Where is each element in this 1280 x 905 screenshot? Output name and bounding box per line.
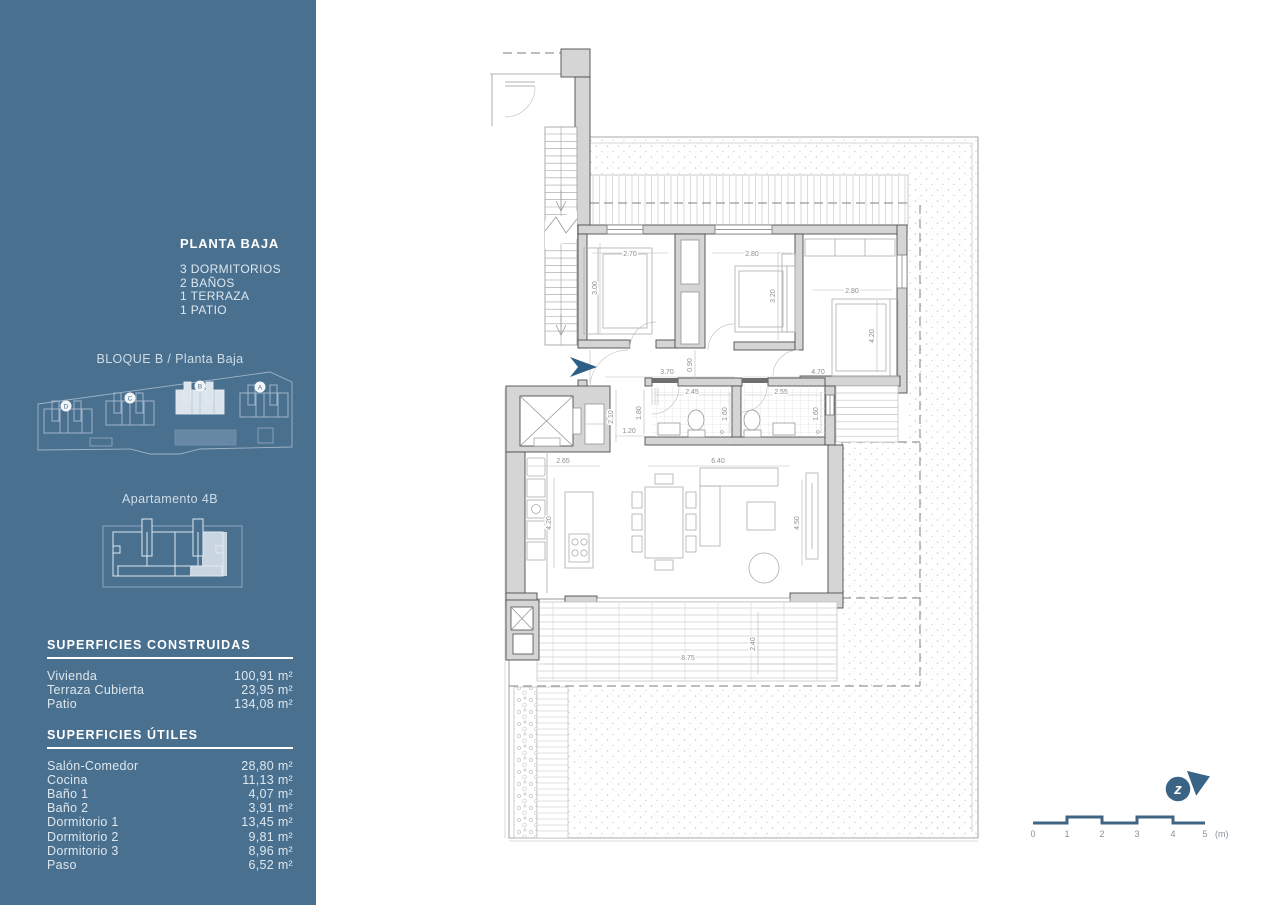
dim-hall-n: 0.90 <box>687 358 694 372</box>
living-kitchen-furniture <box>527 452 818 593</box>
feature-list: 3 DORMITORIOS 2 BAÑOS 1 TERRAZA 1 PATIO <box>180 263 281 317</box>
scale-bar: 0 1 2 3 4 5 (m) <box>1030 817 1228 839</box>
table-row: Dormitorio 38,96 m² <box>47 844 293 858</box>
dim-terrace-h: 2.40 <box>750 637 757 651</box>
dim-hall-w: 3.70 <box>660 369 674 376</box>
table-row: Paso6,52 m² <box>47 858 293 872</box>
scale-tick-0: 0 <box>1030 829 1035 839</box>
row-label: Baño 1 <box>47 787 88 801</box>
feature-item: 2 BAÑOS <box>180 277 281 291</box>
badge-c: C <box>128 396 133 403</box>
site-outbuilding <box>90 438 112 446</box>
bedroom-furniture <box>584 239 898 376</box>
dim-bath2-hr: 1.60 <box>813 407 820 421</box>
block-label: BLOQUE B / Planta Baja <box>30 352 310 366</box>
dim-bed3-w: 2.80 <box>845 288 859 295</box>
row-label: Dormitorio 1 <box>47 815 119 829</box>
dim-hall-s: 1.20 <box>622 428 636 435</box>
apartment-key-diagram <box>100 510 250 598</box>
badge-b: B <box>198 384 202 391</box>
surface-tables: SUPERFICIES CONSTRUIDAS Vivienda100,91 m… <box>47 638 293 872</box>
scale-tick-2: 2 <box>1099 829 1104 839</box>
apartment-label: Apartamento 4B <box>30 492 310 506</box>
site-plan-map: D C B A <box>28 368 300 464</box>
table-row: Cocina11,13 m² <box>47 773 293 787</box>
table-row: Patio134,08 m² <box>47 697 293 711</box>
window-bath2 <box>826 395 834 415</box>
dim-bath1-hr: 1.60 <box>722 407 729 421</box>
scale-unit: (m) <box>1215 829 1229 839</box>
site-badges: D C B A <box>61 381 266 412</box>
table-row: Baño 23,91 m² <box>47 801 293 815</box>
dim-living-w: 6.40 <box>711 458 725 465</box>
apt-highlight-unit <box>190 566 222 576</box>
usable-areas-heading: SUPERFICIES ÚTILES <box>47 728 293 749</box>
sidebar: PLANTA BAJA 3 DORMITORIOS 2 BAÑOS 1 TERR… <box>0 0 316 905</box>
row-label: Dormitorio 2 <box>47 830 119 844</box>
window-bed3 <box>897 255 907 288</box>
dim-kitchen-w: 2.65 <box>556 458 570 465</box>
row-value: 9,81 m² <box>249 830 293 844</box>
exterior-stair <box>490 49 590 345</box>
table-row: Baño 14,07 m² <box>47 787 293 801</box>
dim-kitchen-h: 4.20 <box>546 516 553 530</box>
table-row: Dormitorio 29,81 m² <box>47 830 293 844</box>
row-value: 8,96 m² <box>249 844 293 858</box>
scale-tick-4: 4 <box>1170 829 1175 839</box>
row-label: Terraza Cubierta <box>47 683 144 697</box>
table-row: Dormitorio 113,45 m² <box>47 815 293 829</box>
north-letter: z <box>1173 781 1182 798</box>
scale-tick-3: 3 <box>1134 829 1139 839</box>
dim-hall-e: 4.70 <box>811 369 825 376</box>
brochure-page: 2.70 3.00 2.80 3.20 2.80 4.20 3.70 0.90 … <box>0 0 1280 905</box>
row-value: 13,45 m² <box>241 815 293 829</box>
dim-living-h: 4.50 <box>794 516 801 530</box>
dim-bath2-w: 2.55 <box>774 389 788 396</box>
patio-gravel-texture <box>568 137 978 838</box>
row-value: 28,80 m² <box>241 759 293 773</box>
row-value: 100,91 m² <box>234 669 293 683</box>
row-label: Paso <box>47 858 77 872</box>
dim-bath1-hl: 1.80 <box>636 406 643 420</box>
dim-bed3-h: 4.20 <box>869 329 876 343</box>
dim-terrace-w: 8.75 <box>681 655 695 662</box>
entrance-arrow-icon <box>570 357 597 377</box>
site-outbuilding <box>258 428 273 443</box>
scale-tick-5: 5 <box>1202 829 1207 839</box>
row-label: Baño 2 <box>47 801 88 815</box>
feature-item: 3 DORMITORIOS <box>180 263 281 277</box>
row-value: 11,13 m² <box>242 773 293 787</box>
window-bed1 <box>607 225 643 234</box>
upper-deck-strip <box>590 175 908 225</box>
built-areas-heading: SUPERFICIES CONSTRUIDAS <box>47 638 293 659</box>
row-label: Dormitorio 3 <box>47 844 119 858</box>
side-steps <box>836 386 898 442</box>
dim-bed1-w: 2.70 <box>623 251 637 258</box>
row-label: Salón-Comedor <box>47 759 138 773</box>
row-value: 23,95 m² <box>241 683 293 697</box>
badge-d: D <box>64 404 69 411</box>
row-value: 134,08 m² <box>234 697 293 711</box>
site-pool <box>175 430 236 445</box>
row-value: 4,07 m² <box>249 787 293 801</box>
row-value: 6,52 m² <box>249 858 293 872</box>
north-icon: z <box>1165 770 1211 802</box>
window-bed2 <box>715 225 772 234</box>
scale-tick-1: 1 <box>1064 829 1069 839</box>
dim-hall-v: 2.10 <box>608 410 615 424</box>
covered-terrace <box>537 602 837 681</box>
badge-a: A <box>258 385 263 392</box>
floor-title: PLANTA BAJA <box>180 236 279 251</box>
table-row: Salón-Comedor28,80 m² <box>47 759 293 773</box>
dim-bath1-w: 2.45 <box>685 389 699 396</box>
row-value: 3,91 m² <box>249 801 293 815</box>
dim-bed2-w: 2.80 <box>745 251 759 258</box>
row-label: Vivienda <box>47 669 97 683</box>
feature-item: 1 PATIO <box>180 304 281 318</box>
table-row: Vivienda100,91 m² <box>47 669 293 683</box>
dim-bed1-h: 3.00 <box>592 281 599 295</box>
row-label: Patio <box>47 697 77 711</box>
feature-item: 1 TERRAZA <box>180 290 281 304</box>
table-row: Terraza Cubierta23,95 m² <box>47 683 293 697</box>
dim-bed2-h: 3.20 <box>770 289 777 303</box>
row-label: Cocina <box>47 773 88 787</box>
